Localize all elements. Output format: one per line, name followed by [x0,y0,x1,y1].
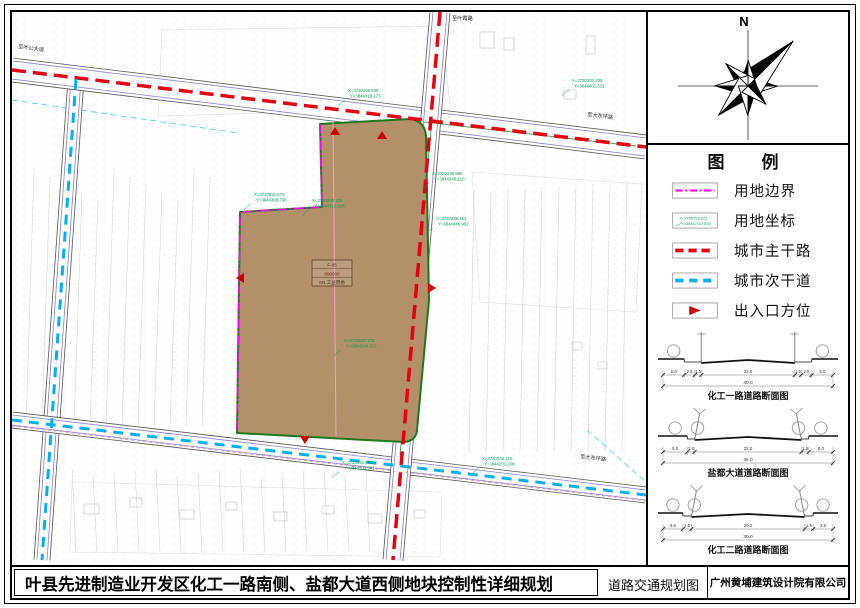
svg-text:20.0: 20.0 [744,523,753,528]
svg-text:X=3720296.939: X=3720296.939 [348,88,379,93]
legend-item-entrance: 出入口方位 [648,295,848,325]
legend-item-label: 用地坐标 [734,210,796,231]
coordinate-swatch-icon: X=3708753.622Y=38447112.802 [672,212,718,229]
svg-text:1.5: 1.5 [795,369,802,374]
tree-icon [667,499,679,511]
svg-text:X=3720091.675: X=3720091.675 [254,192,285,197]
svg-text:Y=3844203.581: Y=3844203.581 [344,466,375,471]
svg-text:Y=38447112.802: Y=38447112.802 [681,221,711,226]
road-name-label: 至叶霞路 [452,14,474,22]
svg-text:1.5: 1.5 [688,446,695,451]
company-name: 广州黄埔建筑设计院有限公司 [707,567,848,598]
svg-text:F-05: F-05 [327,263,337,268]
secondary-road-swatch-icon [672,272,718,289]
legend: 图 例 用地边界X=3708753.622Y=38447112.802用地坐标城… [648,145,848,565]
map-area: F-05090000M1 工业用地X=3720296.939Y=3844318.… [12,12,648,565]
cross-section-1: 5.02.51.522.01.52.55.040.0化工一路道路断面图 [648,329,848,406]
svg-text:X=3720087.175: X=3720087.175 [344,338,375,343]
north-label: N [739,14,748,29]
main-title: 叶县先进制造业开发区化工一路南侧、盐都大道西侧地块控制性详细规划 [14,569,598,596]
drawing-name: 道路交通规划图 [600,567,707,598]
legend-title: 图 例 [648,151,848,175]
plan-sheet: F-05090000M1 工业用地X=3720296.939Y=3844318.… [0,0,860,608]
svg-text:2.5: 2.5 [803,369,810,374]
parcel-info-label: F-05090000M1 工业用地 [312,260,352,286]
entrance-swatch-icon [672,302,718,319]
svg-text:Y=3844312.508: Y=3844312.508 [314,204,345,209]
svg-text:Y=3844348.120: Y=3844348.120 [434,177,465,182]
svg-text:35.0: 35.0 [743,457,753,463]
svg-text:Y=3844346.981: Y=3844346.981 [438,222,469,227]
tree-icon [669,422,681,434]
svg-text:X=3720289.885: X=3720289.885 [432,171,463,176]
legend-item-coordinate: X=3708753.622Y=38447112.802用地坐标 [648,205,848,235]
side-panel: N 图 例 用地边界X=3708753.622Y=38447112.802用地坐… [648,12,848,565]
svg-text:Y=3844201.268: Y=3844201.268 [484,462,515,467]
cross-section-diagram: 5.01.522.01.55.035.0 [650,406,846,468]
svg-text:X=3720052.613: X=3720052.613 [342,460,373,465]
svg-text:3.5: 3.5 [820,523,827,528]
svg-text:X=3720048.316: X=3720048.316 [482,456,513,461]
tree-icon [816,345,828,357]
north-arrow-icon: N [648,12,848,143]
legend-item-boundary: 用地边界 [648,175,848,205]
svg-text:Y=3844318.173: Y=3844318.173 [350,94,381,99]
legend-items: 用地边界X=3708753.622Y=38447112.802用地坐标城市主干路… [648,175,848,325]
svg-text:1.5: 1.5 [802,446,809,451]
cross-section-diagram: 5.02.51.522.01.52.55.040.0 [650,329,846,391]
svg-text:X=3708753.622: X=3708753.622 [679,215,707,220]
cross-section-caption: 化工二路道路断面图 [648,545,848,555]
svg-text:Y=3844294.931: Y=3844294.931 [346,344,377,349]
legend-item-secondary-road: 城市次干道 [648,265,848,295]
legend-item-main-road: 城市主干路 [648,235,848,265]
cross-section-diagram: 3.51.520.01.53.530.0 [650,483,846,545]
inner-frame: F-05090000M1 工业用地X=3720296.939Y=3844318.… [10,10,850,600]
svg-text:5.0: 5.0 [819,369,826,374]
svg-text:22.0: 22.0 [744,446,753,451]
main-title-cell: 叶县先进制造业开发区化工一路南侧、盐都大道西侧地块控制性详细规划 [12,567,600,598]
svg-text:1.5: 1.5 [806,523,813,528]
tree-icon [817,499,829,511]
cross-section-caption: 化工一路道路断面图 [648,391,848,401]
svg-text:X=3720286.153: X=3720286.153 [436,216,467,221]
title-bar: 叶县先进制造业开发区化工一路南侧、盐都大道西侧地块控制性详细规划 道路交通规划图… [12,565,848,598]
main-road-swatch-icon [672,242,718,259]
svg-text:Y=3844308.756: Y=3844308.756 [256,198,287,203]
north-arrow-box: N [648,12,848,145]
svg-text:5.0: 5.0 [671,369,678,374]
svg-text:M1 工业用地: M1 工业用地 [319,279,345,286]
cross-section-caption: 盐都大道道路断面图 [648,468,848,478]
legend-item-label: 出入口方位 [734,300,812,321]
svg-text:090000: 090000 [324,272,340,277]
svg-text:22.0: 22.0 [744,369,753,374]
cross-section-3: 3.51.520.01.53.530.0化工二路道路断面图 [648,483,848,560]
planning-map: F-05090000M1 工业用地X=3720296.939Y=3844318.… [12,12,646,565]
svg-text:40.0: 40.0 [743,380,753,386]
svg-text:X=3720090.125: X=3720090.125 [312,198,343,203]
legend-item-label: 用地边界 [734,180,796,201]
svg-text:X=3720301.205: X=3720301.205 [572,78,603,83]
svg-text:30.0: 30.0 [743,534,753,540]
tree-icon [815,422,827,434]
svg-text:5.0: 5.0 [818,446,825,451]
svg-text:5.0: 5.0 [672,446,679,451]
svg-text:Y=3844401.332: Y=3844401.332 [574,84,605,89]
tree-icon [667,345,679,357]
svg-text:1.5: 1.5 [695,369,702,374]
legend-item-label: 城市次干道 [734,270,812,291]
svg-text:2.5: 2.5 [687,369,694,374]
cross-section-2: 5.01.522.01.55.035.0盐都大道道路断面图 [648,406,848,483]
legend-item-label: 城市主干路 [734,240,812,261]
boundary-swatch-icon [672,182,718,199]
road-cross-sections: 5.02.51.522.01.52.55.040.0化工一路道路断面图5.01.… [648,329,848,560]
svg-text:1.5: 1.5 [684,523,691,528]
svg-text:3.5: 3.5 [670,523,677,528]
